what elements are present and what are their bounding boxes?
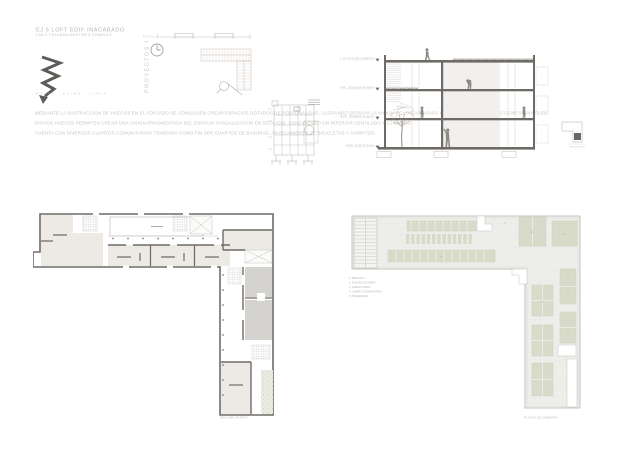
clock-icon [149, 42, 165, 58]
zigzag-arrow-icon [36, 54, 64, 106]
presentation-sheet: EJ 5 LOFT EDIF INACABADO LAB 3 YOLANDA M… [0, 0, 640, 452]
plan-second-caption: SEGUNDA PLANTA [220, 416, 248, 420]
roof-plan: 1 2 3 4 5 1. PERGOLA 2. PLACAS SOLARES 3… [343, 212, 623, 424]
roof-legend: 1. PERGOLA 2. PLACAS SOLARES 3. LAMAS VI… [349, 276, 382, 298]
section-key-plan: SECCION TIPO [562, 122, 586, 149]
project-title: EJ 5 LOFT EDIF INACABADO [36, 27, 125, 33]
project-subtitle: LAB 3 YOLANDA MARTINEZ DOMINGO [36, 34, 125, 38]
svg-text:1. PERGOLA: 1. PERGOLA [349, 276, 365, 280]
person-first-floor-left [420, 107, 423, 118]
section-key-caption: SECCION TIPO [570, 147, 585, 149]
terrace-vegetation [386, 87, 418, 89]
tree [389, 104, 414, 147]
level-markers: NIVEL PLANTA DE CUBIERTA NIVEL SEGUNDA P… [340, 57, 380, 149]
plan-planting-strip [261, 370, 273, 414]
person-first-floor-right [522, 107, 525, 118]
paragraph-3: CUENTA CON DIVERSOS CUARTOS COMUNITARIOS… [35, 130, 247, 136]
scale-label: ESCALA [143, 31, 158, 40]
title-block: EJ 5 LOFT EDIF INACABADO LAB 3 YOLANDA M… [36, 27, 125, 37]
level-label-roof: NIVEL PLANTA DE CUBIERTA [340, 57, 374, 61]
roof-vegetation [453, 58, 533, 60]
solar-panel-grid [354, 218, 377, 268]
level-label-first: NIVEL PRIMERA PLANTA [340, 115, 374, 119]
section-light-shaft [442, 60, 500, 147]
section-footings [377, 152, 516, 158]
svg-text:5. TENDEDERO: 5. TENDEDERO [349, 294, 368, 298]
building-section-drawing: NIVEL PLANTA DE CUBIERTA NIVEL SEGUNDA P… [340, 20, 602, 170]
construction-detail-drawing [264, 97, 326, 173]
svg-text:3. LAMAS VIDRIO: 3. LAMAS VIDRIO [349, 285, 370, 289]
level-label-ground: NIVEL PLANTA BAJA [346, 144, 375, 148]
floor-plan-second: SEGUNDA PLANTA [33, 205, 285, 421]
svg-text:2. PLACAS SOLARES: 2. PLACAS SOLARES [349, 281, 375, 285]
description-block: MEDIANTE LA SUSTRACCION DE HUECOS EN EL … [35, 110, 247, 140]
compass-icon [217, 82, 242, 96]
svg-text:4. CUARTO COMUNITARIO: 4. CUARTO COMUNITARIO [349, 290, 382, 294]
scale-bar [157, 31, 253, 41]
roof-plan-caption: PLANTA DE CUBIERTA [524, 416, 557, 420]
author-line: MARIA CAIRO CIRIA [36, 88, 108, 97]
paragraph-2: DICHOS HUECOS PERMITEN CREAR UNA VISION … [35, 120, 247, 126]
level-label-second: NIVEL SEGUNDA PLANTA [340, 86, 374, 90]
section-stair-lines [387, 64, 402, 102]
paragraph-1: MEDIANTE LA SUSTRACCION DE HUECOS EN EL … [35, 110, 247, 116]
section-right-windows [536, 67, 548, 143]
site-plan-sketch [197, 46, 255, 98]
person-roof [425, 48, 430, 60]
